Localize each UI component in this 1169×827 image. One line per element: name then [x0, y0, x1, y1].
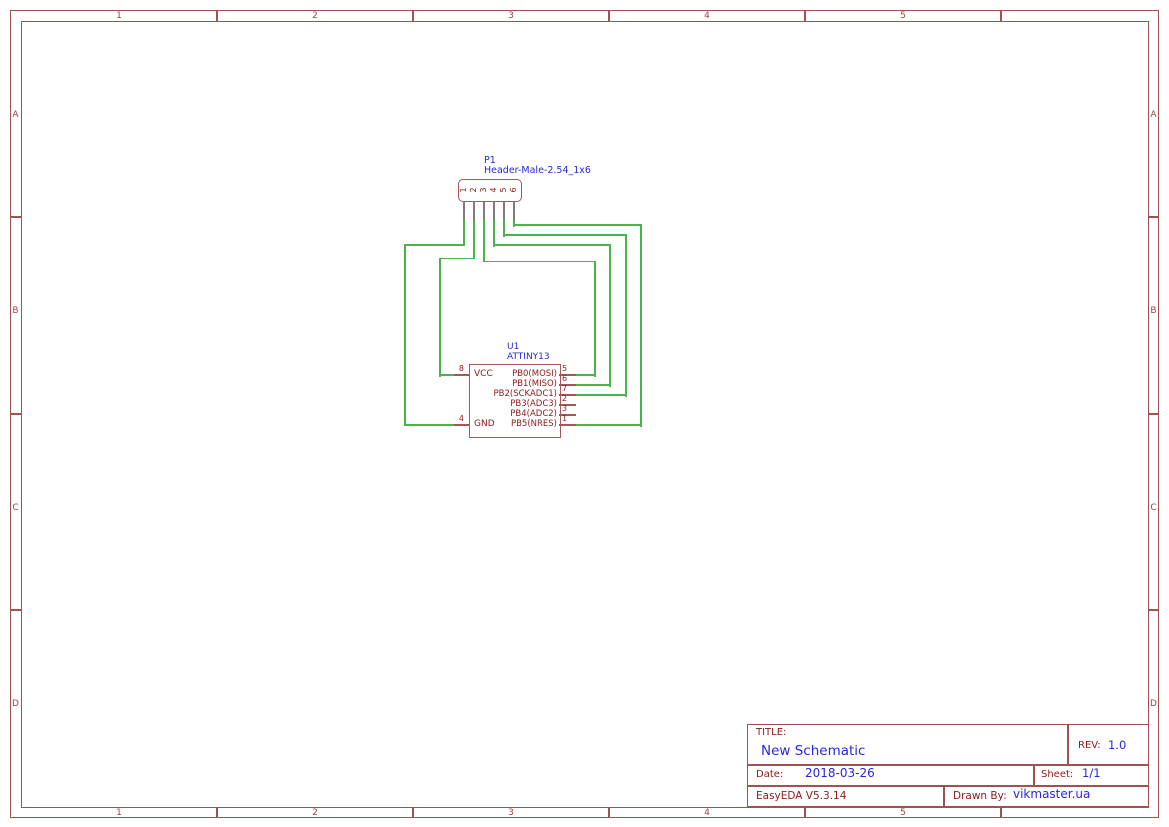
wire-segment[interactable]: [594, 261, 596, 377]
pin-name: PB2(SCKADC1): [480, 389, 557, 399]
grid-column-label: 3: [501, 11, 521, 21]
wire-segment[interactable]: [625, 234, 627, 396]
wire-segment[interactable]: [439, 258, 441, 377]
pin-stub[interactable]: [454, 424, 470, 426]
wire-segment[interactable]: [493, 220, 495, 247]
grid-column-label: 2: [305, 11, 325, 21]
pin-stub[interactable]: [463, 201, 465, 220]
pin-name: PB3(ADC3): [480, 399, 557, 409]
wire-segment[interactable]: [574, 394, 627, 396]
grid-column-label: 4: [697, 808, 717, 818]
pin-number: 7: [562, 384, 578, 394]
pin-name: PB4(ADC2): [480, 409, 557, 419]
title-block-divider: [1067, 724, 1069, 765]
pin-stub[interactable]: [503, 201, 505, 220]
grid-column-label: 5: [893, 11, 913, 21]
component-value[interactable]: Header-Male-2.54_1x6: [484, 166, 591, 177]
component-value[interactable]: ATTINY13: [507, 352, 550, 362]
wire-segment[interactable]: [439, 258, 475, 260]
wire-segment[interactable]: [574, 384, 611, 386]
grid-row-label: A: [10, 109, 21, 121]
schematic-title[interactable]: New Schematic: [761, 744, 865, 760]
frame-tick: [804, 807, 806, 818]
frame-tick: [804, 10, 806, 21]
grid-row-label: B: [1148, 305, 1159, 317]
title-block-divider: [943, 785, 945, 807]
wire-segment[interactable]: [493, 244, 611, 246]
sheet-label: Sheet:: [1041, 769, 1073, 781]
frame-tick: [412, 10, 414, 21]
wire-segment[interactable]: [483, 261, 596, 263]
wire-segment[interactable]: [404, 244, 465, 246]
frame-tick: [1148, 216, 1159, 218]
pin-number: 6: [508, 184, 520, 196]
grid-row-label: A: [1148, 109, 1159, 121]
pin-number: 2: [562, 394, 578, 404]
frame-tick: [10, 216, 21, 218]
drawn-by-label: Drawn By:: [953, 790, 1007, 802]
wire-segment[interactable]: [513, 224, 642, 226]
wire-segment[interactable]: [483, 220, 485, 262]
drawn-by-value[interactable]: vikmaster.ua: [1013, 788, 1090, 802]
wire-segment[interactable]: [463, 220, 465, 246]
grid-column-label: 5: [893, 808, 913, 818]
frame-tick: [608, 10, 610, 21]
frame-tick: [1148, 609, 1159, 611]
wire-segment[interactable]: [404, 424, 458, 426]
pin-number: 5: [562, 364, 578, 374]
rev-label: REV:: [1078, 740, 1101, 752]
grid-column-label: 2: [305, 808, 325, 818]
pin-name: PB1(MISO): [480, 379, 557, 389]
title-block-divider: [1033, 764, 1035, 786]
pin-number: 6: [562, 374, 578, 384]
grid-row-label: C: [1148, 502, 1159, 514]
date-label: Date:: [756, 769, 783, 781]
grid-row-label: D: [10, 698, 21, 710]
pin-name: PB5(NRES): [480, 419, 557, 429]
pin-number: 4: [450, 414, 464, 424]
pin-stub[interactable]: [513, 201, 515, 220]
frame-tick: [1000, 807, 1002, 818]
frame-tick: [412, 807, 414, 818]
software-version: EasyEDA V5.3.14: [756, 790, 846, 802]
grid-row-label: D: [1148, 698, 1159, 710]
wire-segment[interactable]: [574, 424, 642, 426]
grid-column-label: 1: [109, 808, 129, 818]
frame-tick: [216, 807, 218, 818]
grid-column-label: 1: [109, 11, 129, 21]
pin-stub[interactable]: [493, 201, 495, 220]
grid-row-label: C: [10, 502, 21, 514]
grid-column-label: 4: [697, 11, 717, 21]
grid-row-label: B: [10, 305, 21, 317]
pin-name: PB0(MOSI): [480, 369, 557, 379]
pin-stub[interactable]: [559, 424, 576, 426]
frame-tick: [10, 413, 21, 415]
frame-tick: [1148, 413, 1159, 415]
component-reference[interactable]: U1: [507, 342, 519, 352]
pin-stub[interactable]: [454, 374, 470, 376]
pin-number: 8: [450, 364, 464, 374]
frame-tick: [10, 609, 21, 611]
grid-column-label: 3: [501, 808, 521, 818]
rev-value[interactable]: 1.0: [1108, 739, 1126, 752]
frame-tick: [1000, 10, 1002, 21]
frame-tick: [608, 807, 610, 818]
frame-inner-border: [21, 21, 1149, 808]
wire-segment[interactable]: [640, 224, 642, 426]
pin-stub[interactable]: [473, 201, 475, 220]
wire-segment[interactable]: [404, 244, 406, 426]
sheet-value[interactable]: 1/1: [1082, 767, 1101, 780]
wire-segment[interactable]: [609, 244, 611, 386]
schematic-canvas: 1 2 3 4 5 1 2 3 4 5 A B C D A B C D P1 H…: [0, 0, 1169, 827]
title-label: TITLE:: [756, 727, 786, 739]
pin-stub[interactable]: [483, 201, 485, 220]
date-value[interactable]: 2018-03-26: [805, 767, 875, 781]
wire-segment[interactable]: [473, 220, 475, 259]
wire-segment[interactable]: [503, 234, 627, 236]
pin-number: 3: [562, 404, 578, 414]
pin-number: 1: [562, 414, 578, 424]
frame-tick: [216, 10, 218, 21]
